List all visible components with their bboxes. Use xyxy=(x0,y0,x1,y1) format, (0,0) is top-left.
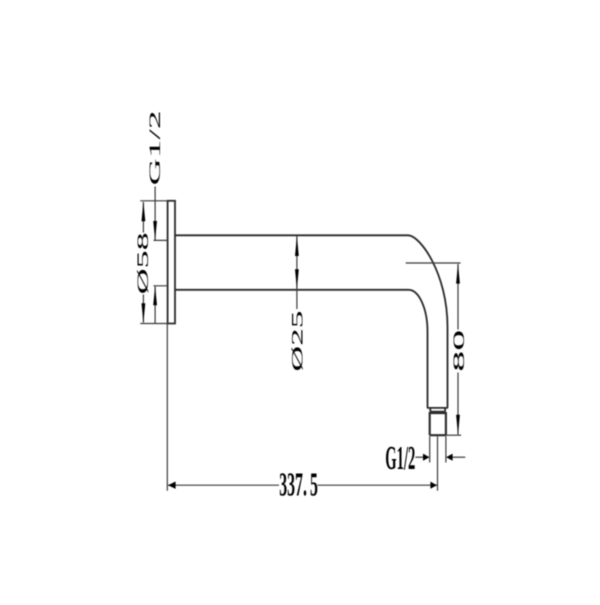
svg-text:Ø58: Ø58 xyxy=(134,232,151,294)
svg-text:G1/2: G1/2 xyxy=(147,110,164,185)
svg-text:G1/2: G1/2 xyxy=(385,439,415,477)
svg-text:80: 80 xyxy=(450,330,467,372)
svg-text:337. 5: 337. 5 xyxy=(279,465,318,503)
svg-text:Ø25: Ø25 xyxy=(289,311,306,372)
